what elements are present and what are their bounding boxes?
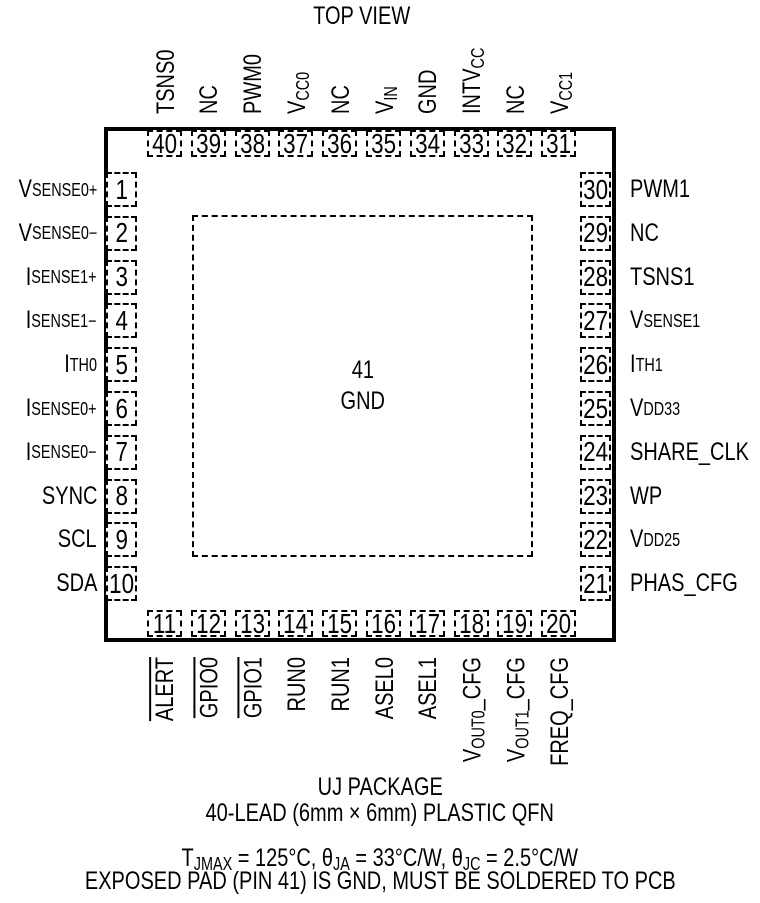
- pin-5-label: ITH0: [64, 350, 97, 380]
- pin-23-box: 23: [580, 479, 611, 514]
- label-fragment: OUT0: [468, 710, 488, 748]
- pin-13-label: GPIO1: [241, 657, 266, 718]
- pin-20-number: 20: [546, 610, 571, 638]
- pin-32-number: 32: [502, 130, 527, 158]
- pin-38-box: 38: [235, 130, 270, 157]
- pin-12-label: GPIO0: [197, 657, 222, 718]
- pin-2-label: VSENSE0−: [18, 218, 97, 248]
- pin-25-label: VDD33: [630, 394, 680, 424]
- label-fragment: CC0: [293, 72, 313, 101]
- pin-2-number: 2: [115, 219, 127, 247]
- pin-21-box: 21: [580, 566, 611, 601]
- exposed-pad: 41 GND: [192, 215, 533, 557]
- pin-5-number: 5: [115, 351, 127, 379]
- pin-33-label: INTVCC: [460, 48, 485, 114]
- pin-40-number: 40: [152, 130, 177, 158]
- pin-31-box: 31: [541, 130, 576, 157]
- exposed-pad-number: 41: [351, 355, 373, 386]
- figure-title-text: TOP VIEW: [313, 4, 410, 29]
- pin-21-label: PHAS_CFG: [630, 569, 738, 599]
- exposed-pad-note-text: EXPOSED PAD (PIN 41) IS GND, MUST BE SOL…: [85, 869, 676, 894]
- label-fragment: IN: [380, 86, 400, 100]
- pin-5-box: 5: [106, 347, 137, 382]
- pin-15-label: RUN1: [329, 657, 354, 711]
- pin-6-box: 6: [106, 391, 137, 426]
- pin-19-label: VOUT1_CFG: [504, 657, 529, 762]
- pin-27-box: 27: [580, 303, 611, 338]
- pin-31-number: 31: [546, 130, 571, 158]
- pin-29-number: 29: [583, 219, 608, 247]
- pin-28-box: 28: [580, 260, 611, 295]
- pin-8-box: 8: [106, 479, 137, 514]
- pin-32-box: 32: [497, 130, 532, 157]
- pin-8-number: 8: [115, 482, 127, 510]
- pin-26-label: ITH1: [630, 350, 663, 380]
- pin-36-label: NC: [329, 85, 354, 114]
- pin-22-label: VDD25: [630, 525, 680, 555]
- pin-30-label: PWM1: [630, 175, 690, 205]
- pin-3-box: 3: [106, 260, 137, 295]
- label-fragment: GPIO1: [239, 657, 267, 718]
- pin-39-label: NC: [197, 85, 222, 114]
- pin-30-box: 30: [580, 172, 611, 207]
- pin-39-box: 39: [191, 130, 226, 157]
- pin-6-label: ISENSE0+: [26, 394, 97, 424]
- pin-27-number: 27: [583, 307, 608, 335]
- pin-1-number: 1: [115, 176, 127, 204]
- pin-18-number: 18: [459, 610, 484, 638]
- pin-33-box: 33: [454, 130, 489, 157]
- pin-28-number: 28: [583, 263, 608, 291]
- pin-24-box: 24: [580, 435, 611, 470]
- pin-4-label: ISENSE1−: [26, 306, 97, 336]
- pin-38-number: 38: [240, 130, 265, 158]
- pin-19-number: 19: [502, 610, 527, 638]
- pin-36-box: 36: [322, 130, 357, 157]
- pin-37-box: 37: [278, 130, 313, 157]
- package-name-caption: UJ PACKAGE: [0, 775, 760, 800]
- pin-7-label: ISENSE0−: [26, 437, 97, 467]
- label-fragment: CC1: [556, 72, 576, 101]
- pin-16-number: 16: [371, 610, 396, 638]
- pin-14-number: 14: [283, 610, 308, 638]
- pin-13-number: 13: [240, 610, 265, 638]
- pin-29-label: NC: [630, 218, 659, 248]
- label-fragment: CC: [468, 48, 488, 69]
- pin-36-number: 36: [327, 130, 352, 158]
- pin-23-number: 23: [583, 482, 608, 510]
- pin-25-box: 25: [580, 391, 611, 426]
- pin-37-number: 37: [283, 130, 308, 158]
- pin-6-number: 6: [115, 395, 127, 423]
- pin-27-label: VSENSE1: [630, 306, 700, 336]
- pin-2-box: 2: [106, 216, 137, 251]
- pin-10-box: 10: [106, 566, 137, 601]
- pin-38-label: PWM0: [241, 54, 266, 114]
- pin-7-number: 7: [115, 438, 127, 466]
- pin-35-number: 35: [371, 130, 396, 158]
- pin-11-box: 11: [147, 610, 182, 637]
- pin-34-box: 34: [410, 130, 445, 157]
- pin-4-number: 4: [115, 307, 127, 335]
- pin-16-box: 16: [366, 610, 401, 637]
- pin-30-number: 30: [583, 176, 608, 204]
- pin-22-number: 22: [583, 526, 608, 554]
- pin-24-label: SHARE_CLK: [630, 437, 749, 467]
- pin-10-number: 10: [109, 570, 134, 598]
- pin-34-label: GND: [416, 70, 441, 114]
- pin-23-label: WP: [630, 481, 662, 511]
- pin-15-number: 15: [327, 610, 352, 638]
- pin-3-label: ISENSE1+: [26, 262, 97, 292]
- exposed-pad-label: GND: [340, 386, 384, 417]
- pin-10-label: SDA: [56, 569, 97, 599]
- pin-18-box: 18: [454, 610, 489, 637]
- pin-13-box: 13: [235, 610, 270, 637]
- pin-11-label: ALERT: [154, 657, 179, 721]
- pin-20-box: 20: [541, 610, 576, 637]
- label-fragment: OUT1: [512, 710, 532, 748]
- pin-40-box: 40: [147, 130, 182, 157]
- pin-35-box: 35: [366, 130, 401, 157]
- pin-39-number: 39: [196, 130, 221, 158]
- pin-12-number: 12: [196, 610, 221, 638]
- pin-26-number: 26: [583, 351, 608, 379]
- package-description-text: 40-LEAD (6mm × 6mm) PLASTIC QFN: [206, 801, 554, 826]
- pin-14-box: 14: [278, 610, 313, 637]
- pin-9-label: SCL: [58, 525, 97, 555]
- pin-3-number: 3: [115, 263, 127, 291]
- pin-1-label: VSENSE0+: [18, 175, 97, 205]
- pin-17-number: 17: [415, 610, 440, 638]
- figure-title: TOP VIEW: [0, 4, 724, 29]
- pin-33-number: 33: [459, 130, 484, 158]
- pin-34-number: 34: [415, 130, 440, 158]
- pin-9-box: 9: [106, 522, 137, 557]
- pin-1-box: 1: [106, 172, 137, 207]
- pin-40-label: TSNS0: [154, 50, 179, 114]
- pin-14-label: RUN0: [285, 657, 310, 711]
- pin-8-label: SYNC: [41, 481, 97, 511]
- pin-32-label: NC: [504, 85, 529, 114]
- pin-17-label: ASEL1: [416, 657, 441, 719]
- pin-21-number: 21: [583, 570, 608, 598]
- pin-4-box: 4: [106, 303, 137, 338]
- label-fragment: ALERT: [152, 657, 180, 721]
- pin-9-number: 9: [115, 526, 127, 554]
- pin-7-box: 7: [106, 435, 137, 470]
- pin-26-box: 26: [580, 347, 611, 382]
- pin-17-box: 17: [410, 610, 445, 637]
- pin-31-label: VCC1: [548, 72, 573, 114]
- pin-29-box: 29: [580, 216, 611, 251]
- pin-28-label: TSNS1: [630, 262, 694, 292]
- label-fragment: GPIO0: [195, 657, 223, 718]
- pin-15-box: 15: [322, 610, 357, 637]
- pin-19-box: 19: [497, 610, 532, 637]
- pin-22-box: 22: [580, 522, 611, 557]
- pin-18-label: VOUT0_CFG: [460, 657, 485, 762]
- pin-20-label: FREQ_CFG: [548, 657, 573, 766]
- pin-16-label: ASEL0: [373, 657, 398, 719]
- pin-11-number: 11: [153, 610, 176, 638]
- package-name-text: UJ PACKAGE: [317, 775, 442, 800]
- pin-35-label: VIN: [373, 86, 398, 114]
- pin-24-number: 24: [583, 438, 608, 466]
- pin-12-box: 12: [191, 610, 226, 637]
- exposed-pad-note: EXPOSED PAD (PIN 41) IS GND, MUST BE SOL…: [0, 869, 760, 894]
- package-description-caption: 40-LEAD (6mm × 6mm) PLASTIC QFN: [0, 801, 760, 826]
- pin-25-number: 25: [583, 395, 608, 423]
- pin-37-label: VCC0: [285, 72, 310, 114]
